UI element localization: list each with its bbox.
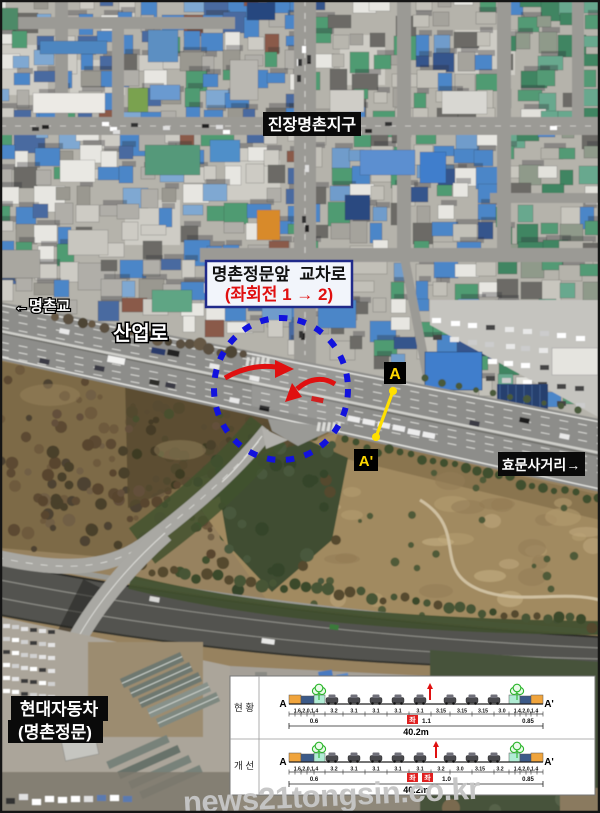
svg-text:3.1: 3.1 — [372, 767, 379, 773]
svg-text:효문사거리→: 효문사거리→ — [502, 457, 580, 473]
svg-text:3.1: 3.1 — [394, 709, 401, 715]
svg-text:1.1: 1.1 — [422, 718, 431, 725]
svg-text:3.1: 3.1 — [350, 767, 357, 773]
svg-text:3.1: 3.1 — [372, 709, 379, 715]
svg-text:3.1: 3.1 — [350, 709, 357, 715]
svg-text:A: A — [279, 757, 286, 768]
svg-text:3.1: 3.1 — [416, 709, 423, 715]
svg-text:개 선: 개 선 — [234, 761, 254, 772]
svg-text:1.6,2.0,1.4: 1.6,2.0,1.4 — [294, 709, 319, 715]
svg-text:1.6,2.0,1.4: 1.6,2.0,1.4 — [294, 767, 319, 773]
svg-text:3.15: 3.15 — [457, 709, 467, 715]
svg-text:좌: 좌 — [409, 715, 416, 724]
svg-text:3.2: 3.2 — [330, 709, 337, 715]
svg-text:현대자동차: 현대자동차 — [20, 700, 99, 719]
svg-text:←명촌교: ←명촌교 — [14, 297, 71, 315]
svg-text:3.2: 3.2 — [330, 767, 337, 773]
svg-text:3.15: 3.15 — [436, 709, 446, 715]
svg-text:명촌정문앞 교차로: 명촌정문앞 교차로 — [212, 265, 347, 284]
svg-text:1.4,2.0,1.4: 1.4,2.0,1.4 — [514, 709, 539, 715]
svg-text:3.0: 3.0 — [498, 709, 505, 715]
svg-text:A': A' — [359, 453, 373, 470]
svg-text:현 황: 현 황 — [234, 703, 254, 714]
svg-text:A: A — [389, 366, 401, 383]
svg-text:3.1: 3.1 — [416, 767, 423, 773]
svg-text:0.85: 0.85 — [522, 777, 534, 783]
svg-text:산업로: 산업로 — [113, 322, 168, 345]
svg-text:0.85: 0.85 — [522, 719, 534, 725]
svg-text:3.1: 3.1 — [394, 767, 401, 773]
svg-text:진장명촌지구: 진장명촌지구 — [268, 116, 357, 134]
svg-text:3.15: 3.15 — [478, 709, 488, 715]
svg-text:0.6: 0.6 — [310, 719, 319, 725]
svg-text:1.4,2.0,1.4: 1.4,2.0,1.4 — [514, 767, 539, 773]
svg-text:40.2m: 40.2m — [403, 727, 429, 737]
svg-text:(명촌정문): (명촌정문) — [18, 723, 92, 742]
svg-text:A': A' — [544, 757, 554, 768]
svg-text:A: A — [279, 699, 286, 710]
svg-text:(좌회전 1 → 2): (좌회전 1 → 2) — [225, 285, 333, 304]
svg-text:A': A' — [544, 699, 554, 710]
svg-text:3.2: 3.2 — [496, 767, 503, 773]
